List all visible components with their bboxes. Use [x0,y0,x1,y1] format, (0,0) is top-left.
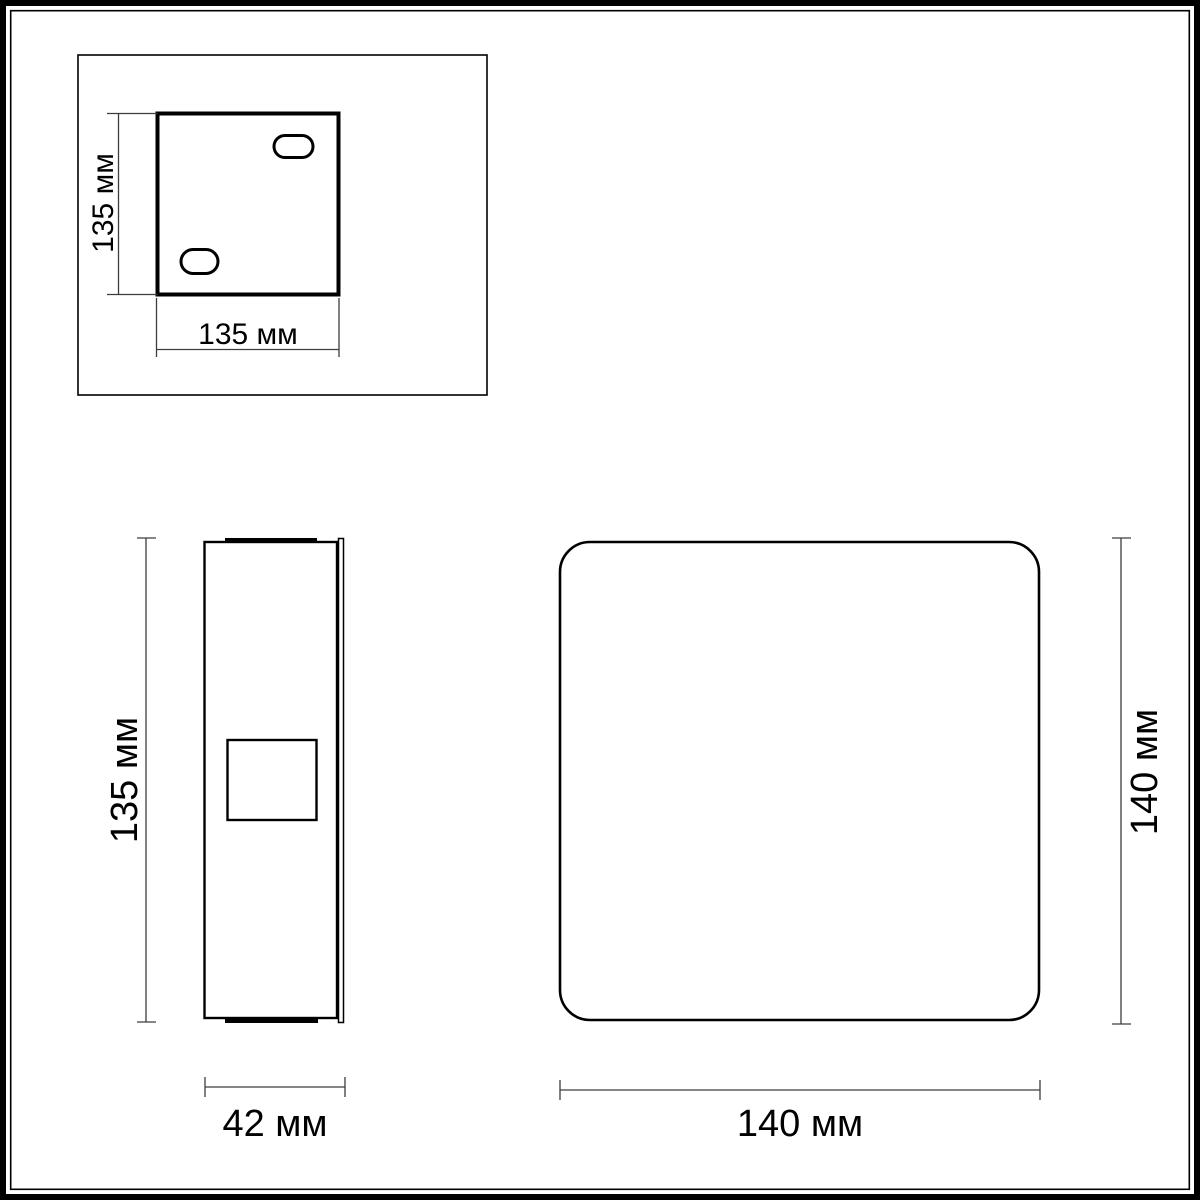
side-height-label: 135 мм [104,717,146,843]
back-plate-width-label: 135 мм [198,318,298,351]
back-plate-height-label: 135 мм [87,153,120,253]
dimension-drawing: 135 мм 135 мм 135 мм [0,0,1200,1200]
side-depth-label: 42 мм [222,1103,327,1145]
front-height-label: 140 мм [1124,709,1166,835]
dimension-drawing-page: 135 мм 135 мм 135 мм [0,0,1200,1200]
front-width-label: 140 мм [737,1103,863,1145]
side-depth-dimension: 42 мм [205,1077,345,1145]
